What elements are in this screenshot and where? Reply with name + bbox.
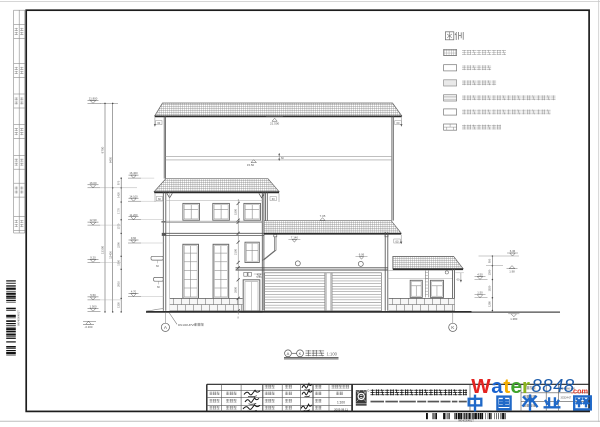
svg-text:1.380: 1.380 — [510, 317, 517, 321]
svg-text:t: t — [503, 375, 510, 398]
svg-text:A: A — [287, 351, 290, 356]
svg-text:950: 950 — [488, 258, 492, 263]
svg-text:5.50: 5.50 — [90, 293, 96, 297]
svg-text:1500: 1500 — [233, 209, 237, 215]
svg-text:1.50: 1.50 — [477, 291, 483, 295]
svg-text:12.90: 12.90 — [90, 218, 97, 222]
svg-text:2290: 2290 — [117, 242, 121, 248]
svg-text:W04000481T: W04000481T — [458, 419, 474, 422]
svg-text:2100: 2100 — [233, 249, 237, 255]
svg-text:K: K — [299, 351, 302, 356]
svg-text:1770: 1770 — [117, 208, 121, 214]
svg-text:15.50: 15.50 — [247, 163, 255, 167]
svg-text:7.140: 7.140 — [291, 236, 299, 240]
svg-text:1280: 1280 — [488, 301, 492, 307]
svg-text:970: 970 — [117, 180, 121, 185]
svg-text:12400: 12400 — [108, 251, 112, 259]
svg-text:4.70: 4.70 — [131, 290, 137, 294]
svg-text:r: r — [522, 375, 530, 398]
svg-text:1820: 1820 — [488, 285, 492, 291]
svg-text:16.60: 16.60 — [90, 181, 97, 185]
svg-text:1370: 1370 — [117, 223, 121, 229]
svg-text:1:100: 1:100 — [337, 400, 345, 404]
svg-text:1.98: 1.98 — [509, 270, 515, 274]
svg-text:4.50: 4.50 — [477, 272, 483, 276]
svg-text:1390: 1390 — [488, 269, 492, 275]
svg-text:21.800: 21.800 — [89, 97, 98, 101]
svg-text:9.60: 9.60 — [131, 236, 137, 240]
svg-text:1420: 1420 — [117, 192, 121, 198]
svg-text:8450: 8450 — [108, 156, 112, 163]
svg-text:14.100: 14.100 — [129, 194, 138, 198]
svg-text:21.500: 21.500 — [270, 122, 280, 126]
svg-text:W04000481T: W04000481T — [17, 310, 21, 326]
svg-text:8848: 8848 — [532, 375, 575, 396]
svg-text:DN100UPVC: DN100UPVC — [178, 323, 197, 327]
svg-text:5.46: 5.46 — [256, 275, 262, 279]
svg-text:6.36: 6.36 — [510, 249, 516, 253]
svg-text:9.20: 9.20 — [90, 256, 96, 260]
svg-text:13300: 13300 — [101, 245, 105, 254]
svg-text:1.500: 1.500 — [90, 304, 97, 308]
svg-text:16.400: 16.400 — [129, 171, 138, 175]
svg-text:a: a — [491, 375, 503, 398]
svg-text:1:100: 1:100 — [327, 352, 338, 357]
svg-text:2800: 2800 — [233, 287, 237, 293]
svg-text:W: W — [471, 375, 491, 398]
svg-text:.com: .com — [571, 386, 589, 395]
svg-text:e: e — [511, 375, 522, 398]
svg-text:-0.300: -0.300 — [85, 325, 93, 329]
svg-text:11.200: 11.200 — [129, 213, 138, 217]
svg-text:3CS24-07: 3CS24-07 — [561, 396, 572, 399]
svg-text:2009.08.11: 2009.08.11 — [334, 407, 348, 411]
svg-text:1350: 1350 — [117, 302, 121, 308]
svg-text:8700: 8700 — [101, 146, 105, 153]
svg-text:2910: 2910 — [117, 281, 121, 287]
svg-text:6.06: 6.06 — [359, 252, 365, 256]
